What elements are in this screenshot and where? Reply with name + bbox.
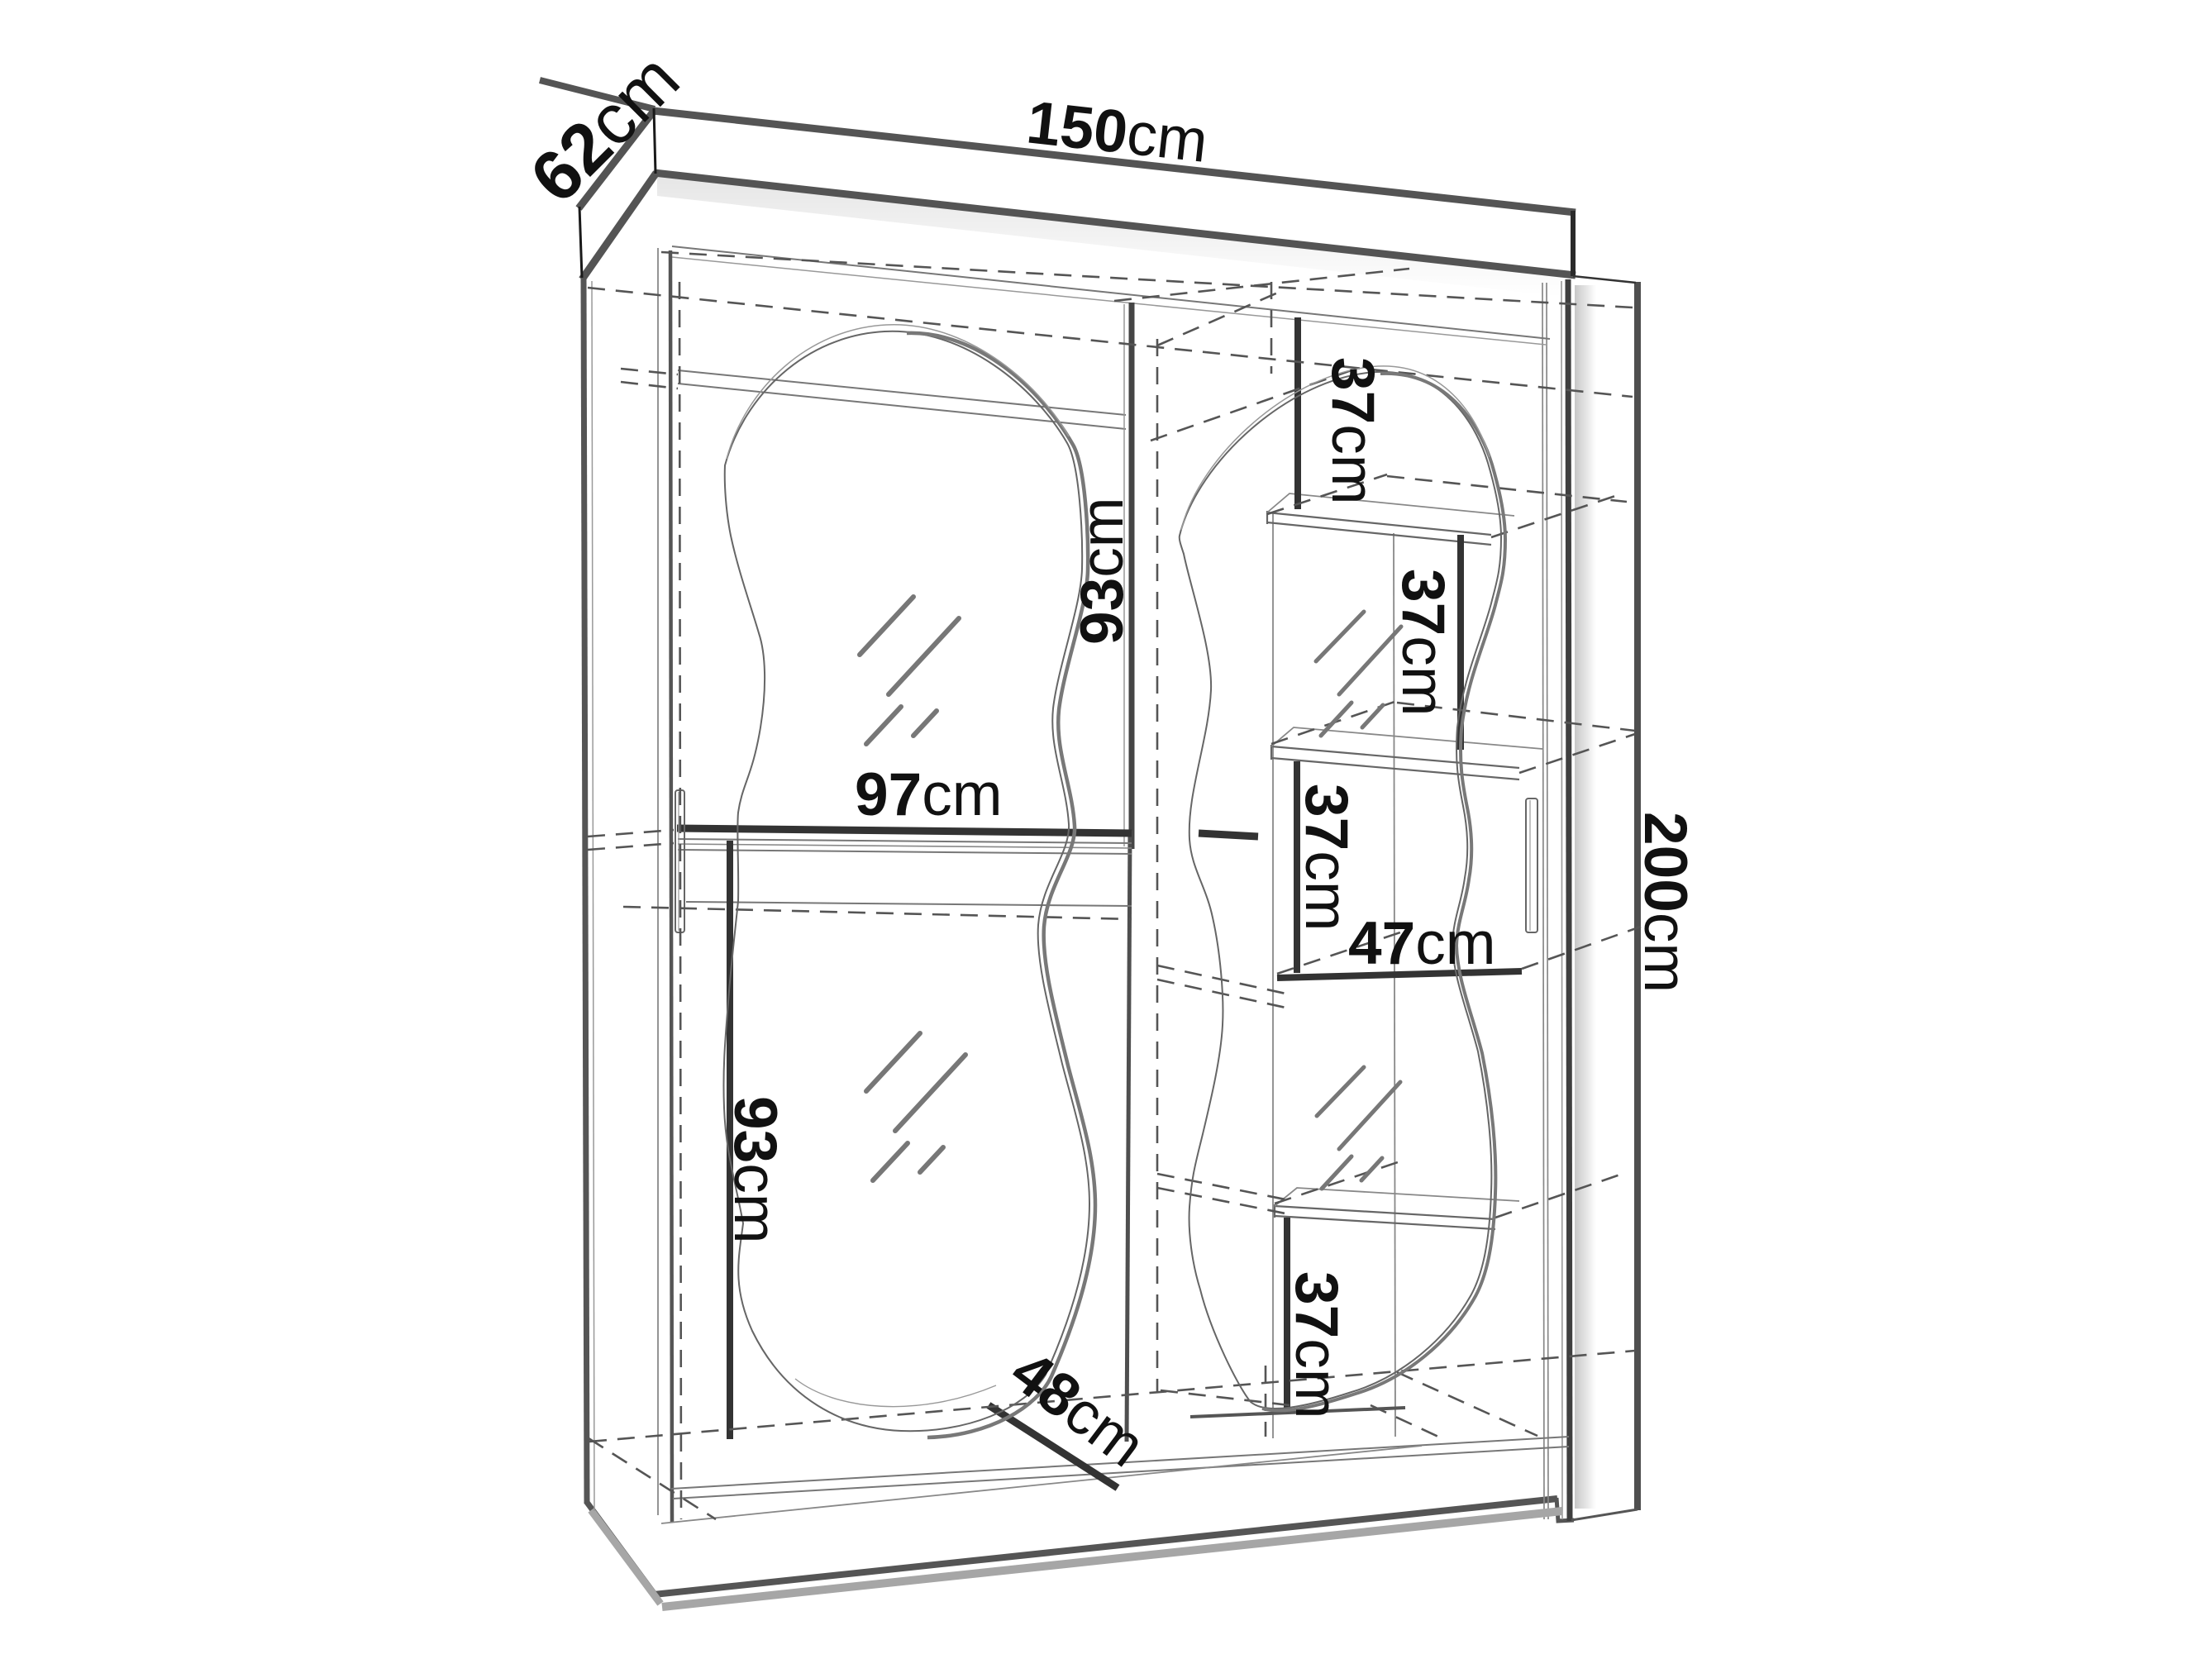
svg-text:37cm: 37cm bbox=[1283, 1271, 1350, 1419]
svg-text:150cm: 150cm bbox=[1023, 88, 1211, 175]
svg-text:37cm: 37cm bbox=[1319, 357, 1386, 505]
svg-text:200cm: 200cm bbox=[1632, 812, 1699, 993]
svg-text:37cm: 37cm bbox=[1293, 784, 1360, 932]
svg-text:47cm: 47cm bbox=[1348, 910, 1496, 977]
svg-text:93cm: 93cm bbox=[1069, 497, 1136, 645]
svg-text:37cm: 37cm bbox=[1390, 569, 1456, 717]
svg-text:97cm: 97cm bbox=[855, 761, 1003, 828]
svg-text:93cm: 93cm bbox=[722, 1096, 789, 1244]
